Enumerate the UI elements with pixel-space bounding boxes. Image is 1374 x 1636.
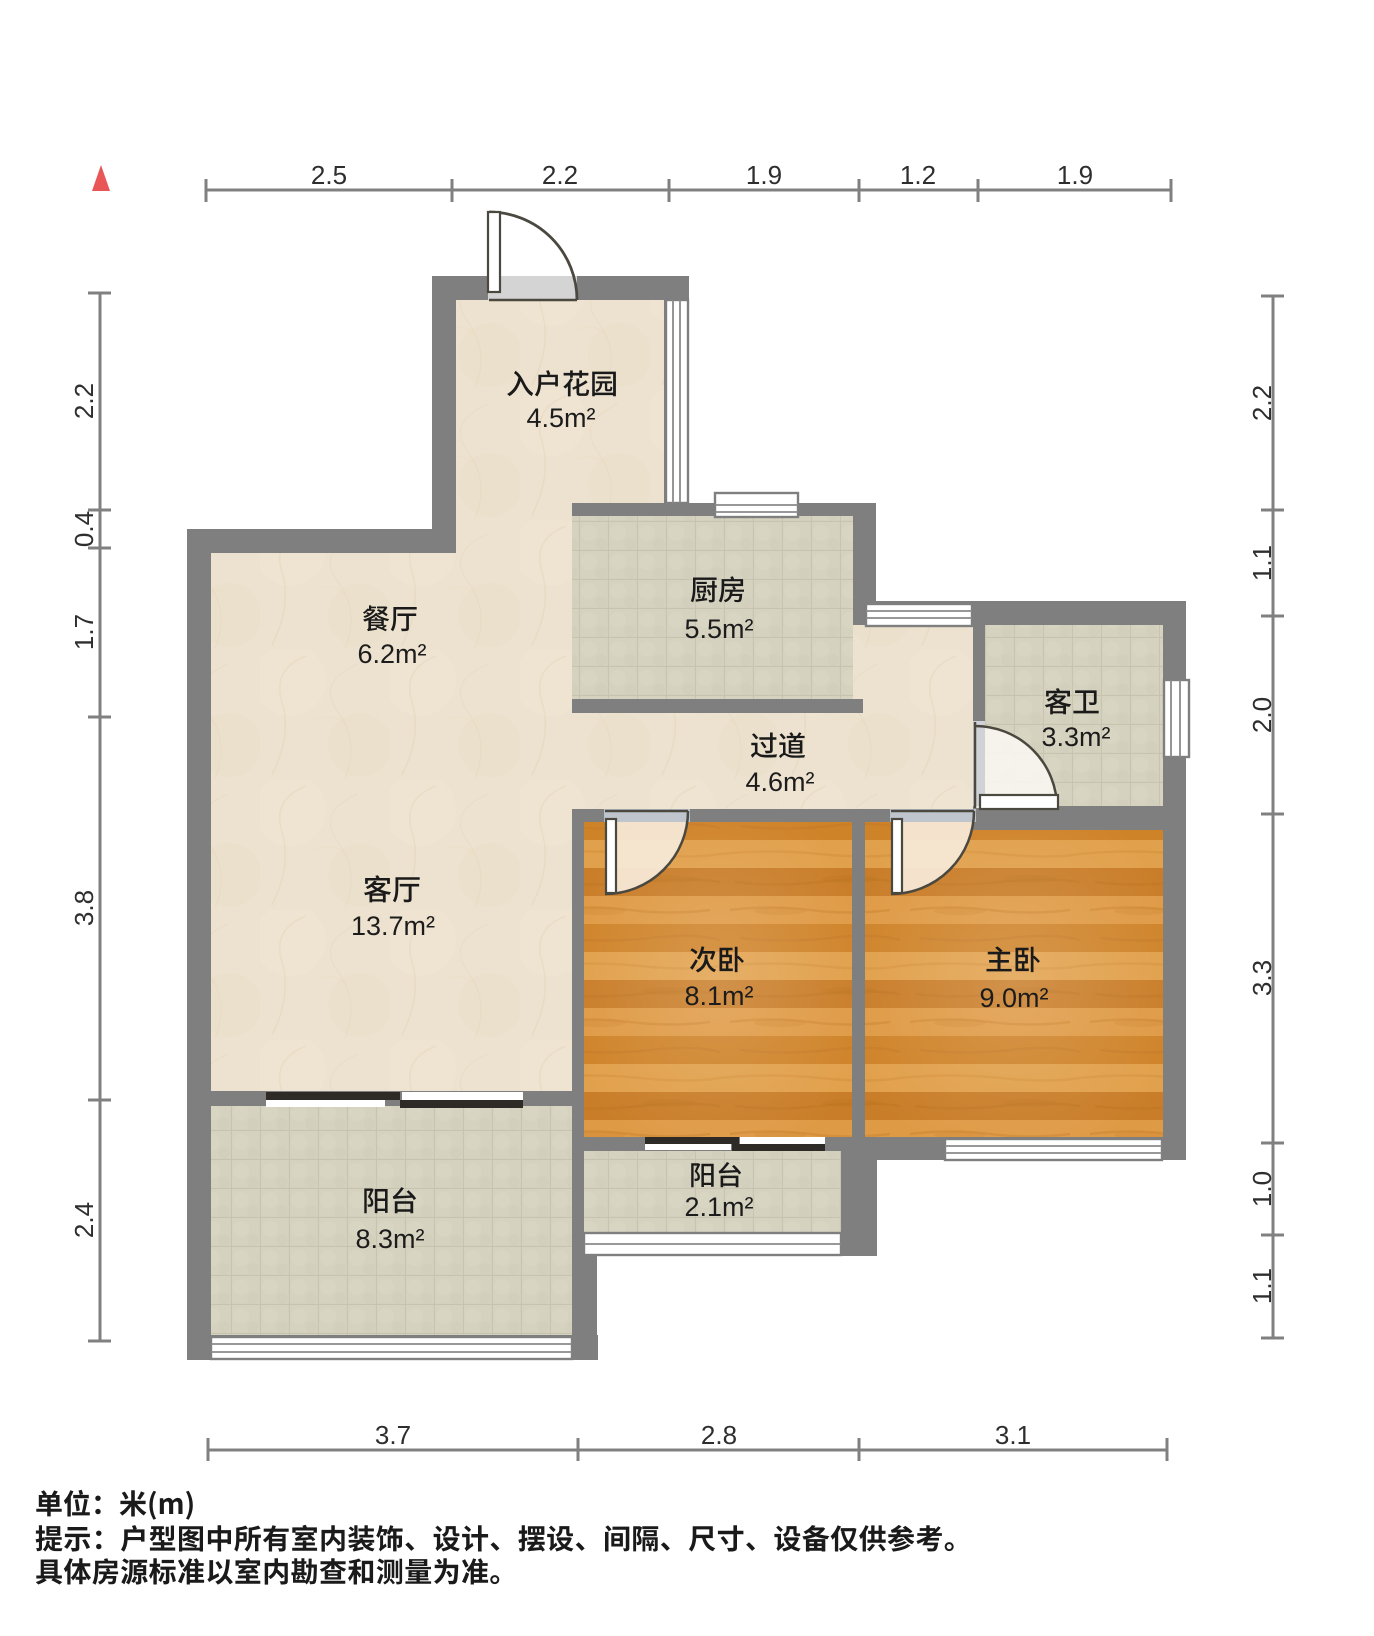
svg-text:2.8: 2.8	[701, 1420, 737, 1450]
svg-text:0.4: 0.4	[69, 511, 99, 547]
svg-text:1.7: 1.7	[69, 614, 99, 650]
svg-text:2.1m²: 2.1m²	[684, 1192, 753, 1222]
svg-text:9.0m²: 9.0m²	[979, 983, 1048, 1013]
svg-text:3.1: 3.1	[995, 1420, 1031, 1450]
svg-text:4.5m²: 4.5m²	[526, 403, 595, 433]
svg-text:2.4: 2.4	[69, 1202, 99, 1238]
svg-text:3.8: 3.8	[69, 890, 99, 926]
svg-text:2.0: 2.0	[1247, 697, 1277, 733]
svg-text:3.3m²: 3.3m²	[1041, 722, 1110, 752]
svg-text:2.5: 2.5	[311, 160, 347, 190]
svg-text:3.3: 3.3	[1247, 960, 1277, 996]
svg-text:8.3m²: 8.3m²	[355, 1224, 424, 1254]
svg-text:1.0: 1.0	[1247, 1171, 1277, 1207]
svg-text:3.7: 3.7	[375, 1420, 411, 1450]
svg-text:1.9: 1.9	[1057, 160, 1093, 190]
svg-text:2.2: 2.2	[1247, 385, 1277, 421]
svg-text:1.9: 1.9	[746, 160, 782, 190]
svg-text:2.2: 2.2	[542, 160, 578, 190]
svg-text:8.1m²: 8.1m²	[684, 981, 753, 1011]
svg-text:1.1: 1.1	[1247, 1268, 1277, 1304]
svg-text:4.6m²: 4.6m²	[745, 767, 814, 797]
svg-text:6.2m²: 6.2m²	[357, 639, 426, 669]
svg-text:5.5m²: 5.5m²	[684, 614, 753, 644]
svg-text:1.1: 1.1	[1247, 545, 1277, 581]
svg-text:2.2: 2.2	[69, 383, 99, 419]
svg-text:13.7m²: 13.7m²	[351, 911, 435, 941]
svg-text:1.2: 1.2	[900, 160, 936, 190]
